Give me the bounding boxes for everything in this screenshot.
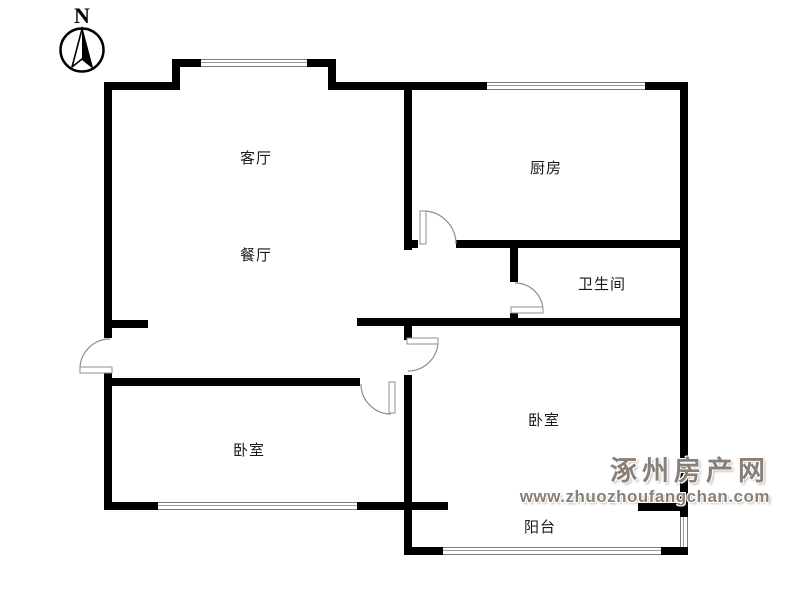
room-label-balcony: 阳台 [524,516,556,537]
bathroom-door [511,283,543,313]
wall-top-left [104,82,180,90]
wall-bedroom1-top [110,378,360,386]
wall-center-vertical-stub [404,318,412,340]
wall-bathroom-left-upper [510,248,518,282]
floor-plan: N 客厅 餐厅 厨房 卫生间 卧室 卧室 阳台 涿州房产网 www.zhuozh… [0,0,800,600]
room-label-bedroom-left: 卧室 [233,439,265,460]
wall-left-lower [104,371,112,510]
room-label-dining: 餐厅 [240,244,272,265]
north-compass-icon: N [53,0,113,78]
balcony-right-window [680,517,688,547]
watermark: 涿州房产网 www.zhuozhoufangchan.com [520,457,770,506]
wall-center-vertical-lower [404,375,412,555]
wall-bay-top-left-cap [172,59,201,67]
wall-bedroom1-bottom-right [357,502,448,510]
bedroom-left-window [158,502,357,510]
kitchen-door [420,211,456,244]
room-label-kitchen: 厨房 [530,157,562,178]
balcony-bottom-window [443,547,661,555]
entry-door [80,339,112,373]
wall-balcony-bottom-right [661,547,688,555]
wall-left-upper [104,82,112,338]
wall-bedroom1-bottom-left [104,502,158,510]
wall-center-vertical-upper [404,82,412,250]
kitchen-window [487,82,645,90]
room-label-bathroom: 卫生间 [578,273,626,294]
wall-kitchen-bottom-stub [404,240,418,248]
watermark-site-name: 涿州房产网 [520,457,770,485]
bedroom-right-door [407,338,438,371]
compass-north-label: N [74,3,90,28]
room-label-bedroom-right: 卧室 [528,409,560,430]
wall-right [680,82,688,517]
bedroom-left-door [361,382,395,414]
bay-window [201,59,307,67]
wall-entry-stub [104,320,148,328]
watermark-url: www.zhuozhoufangchan.com [520,488,770,506]
room-label-living: 客厅 [240,147,272,168]
wall-kitchen-bottom-main [456,240,688,248]
